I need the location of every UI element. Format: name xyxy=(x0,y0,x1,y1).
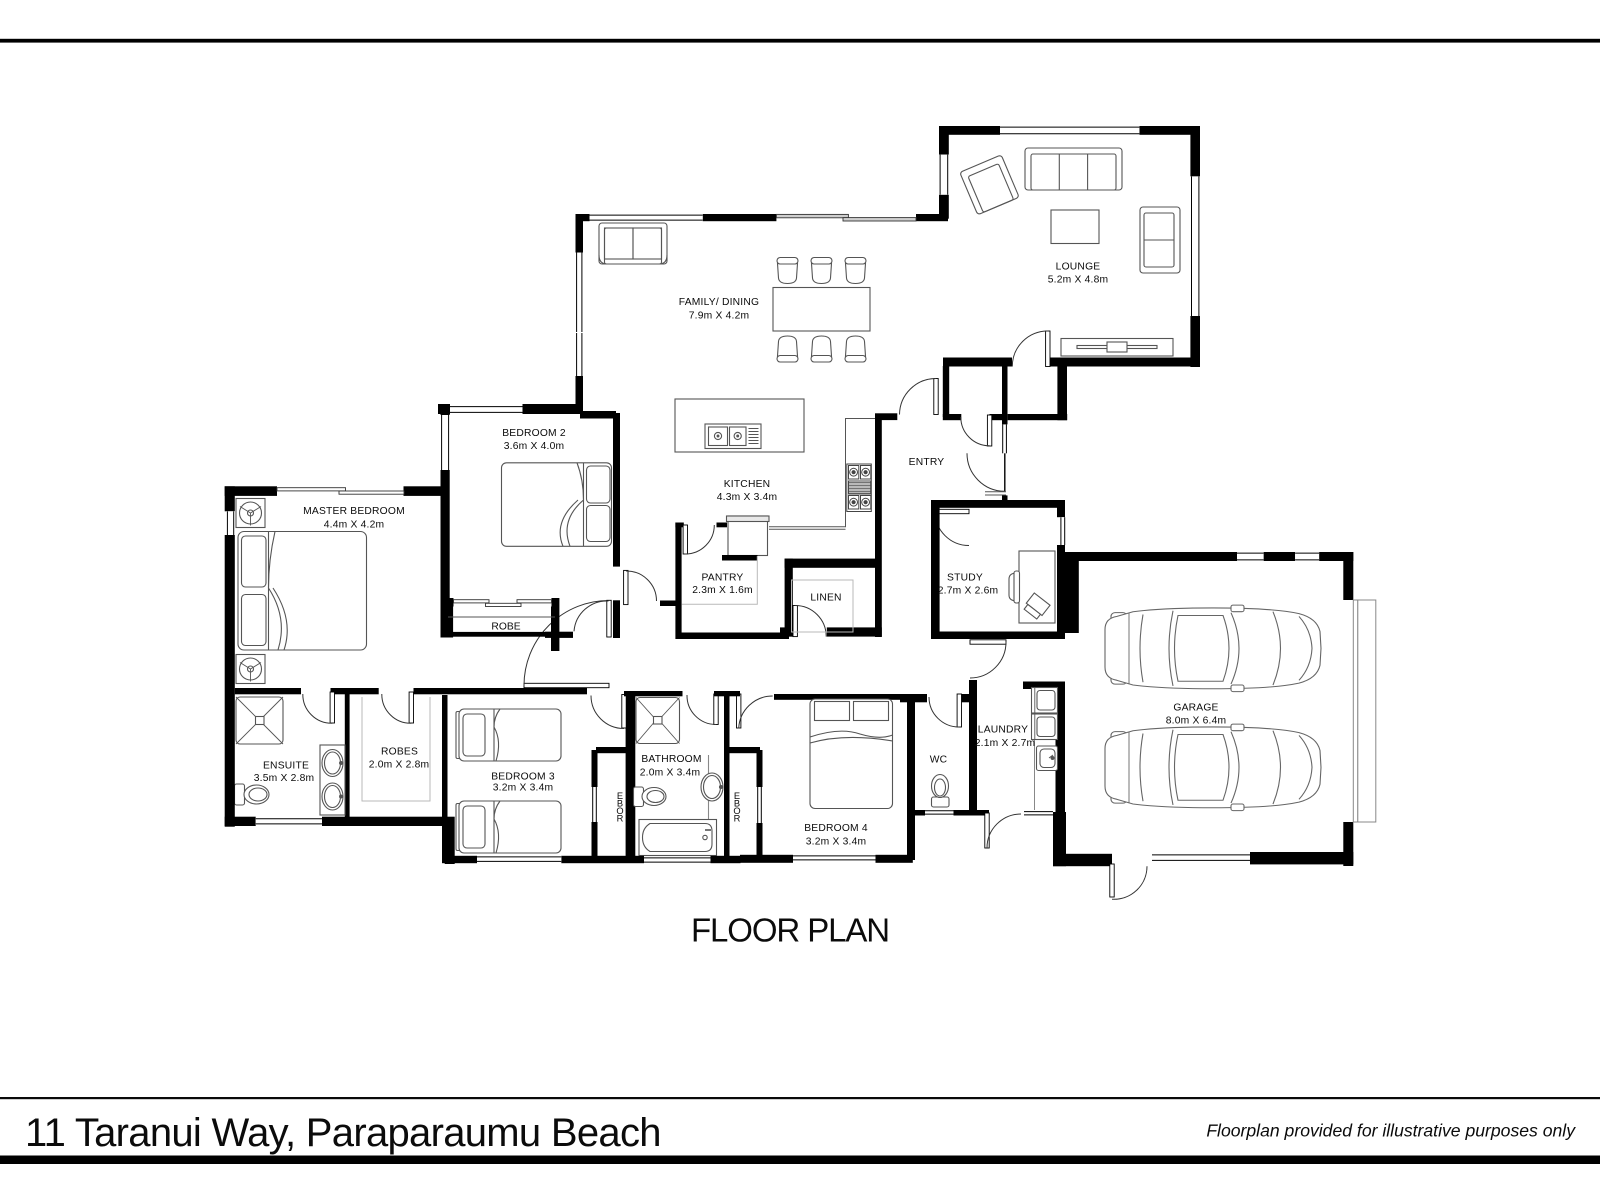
svg-text:LAUNDRY: LAUNDRY xyxy=(978,725,1028,736)
svg-text:FLOOR PLAN: FLOOR PLAN xyxy=(691,912,889,949)
svg-text:2.3m X 1.6m: 2.3m X 1.6m xyxy=(692,585,753,596)
svg-text:STUDY: STUDY xyxy=(947,573,983,584)
svg-text:BEDROOM 2: BEDROOM 2 xyxy=(502,428,566,439)
svg-text:ENSUITE: ENSUITE xyxy=(263,761,309,772)
svg-text:2.0m X 3.4m: 2.0m X 3.4m xyxy=(640,768,701,779)
svg-text:Floorplan provided for illustr: Floorplan provided for illustrative purp… xyxy=(1206,1121,1576,1141)
svg-text:KITCHEN: KITCHEN xyxy=(724,479,771,490)
svg-text:BATHROOM: BATHROOM xyxy=(641,754,701,765)
svg-text:BEDROOM 4: BEDROOM 4 xyxy=(804,823,868,834)
svg-text:8.0m X 6.4m: 8.0m X 6.4m xyxy=(1166,716,1227,727)
svg-text:ROBES: ROBES xyxy=(381,747,418,758)
svg-text:LINEN: LINEN xyxy=(810,593,841,604)
svg-text:2.0m X 2.8m: 2.0m X 2.8m xyxy=(369,760,430,771)
svg-text:4.4m X 4.2m: 4.4m X 4.2m xyxy=(324,520,385,531)
svg-text:ROBE: ROBE xyxy=(491,622,520,633)
svg-text:3.2m X 3.4m: 3.2m X 3.4m xyxy=(806,837,867,848)
svg-text:5.2m X 4.8m: 5.2m X 4.8m xyxy=(1048,275,1109,286)
svg-text:ENTRY: ENTRY xyxy=(909,457,945,468)
svg-text:MASTER BEDROOM: MASTER BEDROOM xyxy=(303,506,405,517)
svg-text:2.7m X 2.6m: 2.7m X 2.6m xyxy=(938,586,999,597)
svg-text:BEDROOM 3: BEDROOM 3 xyxy=(491,772,555,783)
svg-text:EBOR: EBOR xyxy=(616,791,623,823)
svg-text:4.3m X 3.4m: 4.3m X 3.4m xyxy=(717,492,778,503)
svg-text:PANTRY: PANTRY xyxy=(701,573,743,584)
svg-text:FAMILY/ DINING: FAMILY/ DINING xyxy=(679,297,759,308)
svg-text:7.9m X 4.2m: 7.9m X 4.2m xyxy=(689,311,750,322)
svg-text:LOUNGE: LOUNGE xyxy=(1056,262,1101,273)
svg-text:3.2m X 3.4m: 3.2m X 3.4m xyxy=(493,783,554,794)
svg-text:2.1m X 2.7m: 2.1m X 2.7m xyxy=(975,738,1036,749)
svg-text:3.6m X 4.0m: 3.6m X 4.0m xyxy=(504,441,565,452)
svg-text:11 Taranui Way, Paraparaumu Be: 11 Taranui Way, Paraparaumu Beach xyxy=(25,1111,661,1155)
svg-text:GARAGE: GARAGE xyxy=(1173,703,1218,714)
svg-text:EBOR: EBOR xyxy=(733,791,740,823)
svg-text:3.5m X 2.8m: 3.5m X 2.8m xyxy=(254,773,315,784)
svg-text:WC: WC xyxy=(930,755,948,766)
